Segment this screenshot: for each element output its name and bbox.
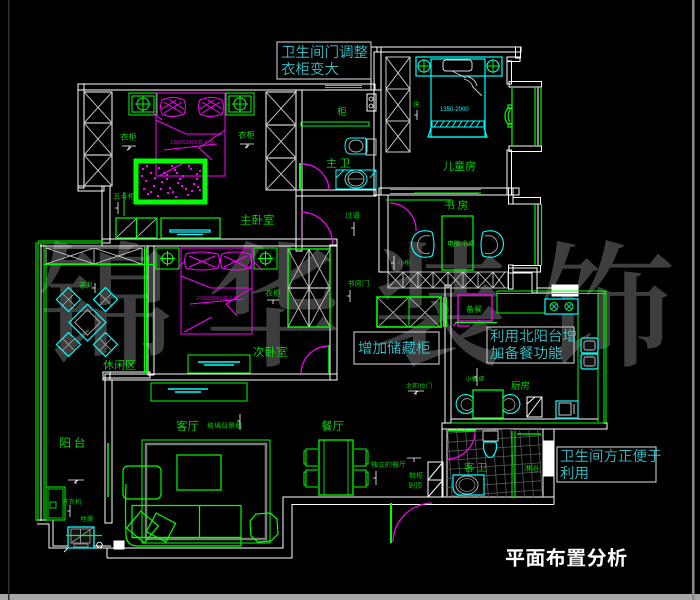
svg-text:1350-2000: 1350-2000 <box>440 107 469 113</box>
